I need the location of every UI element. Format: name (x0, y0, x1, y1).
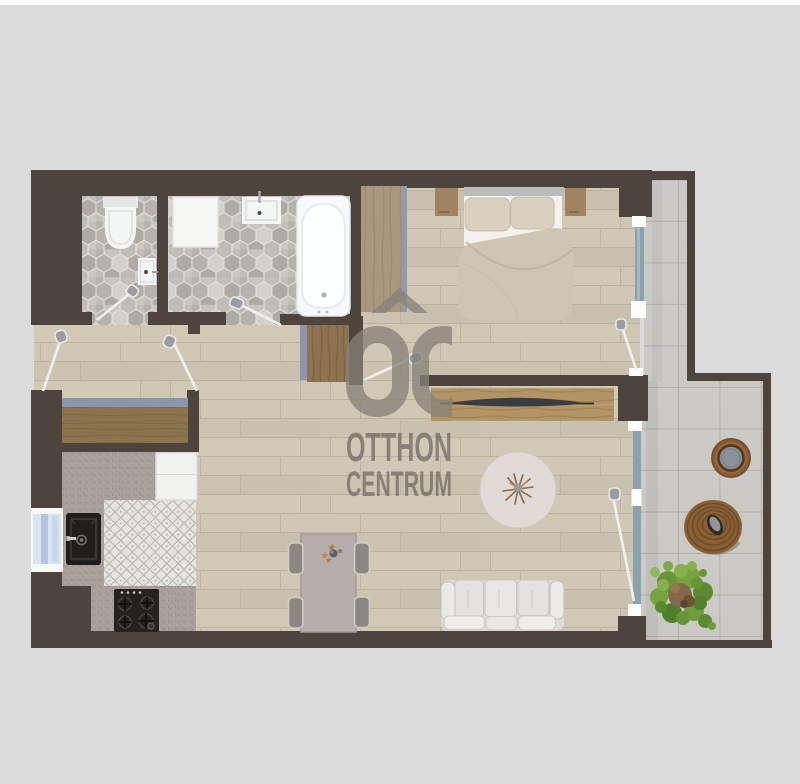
svg-text:CENTRUM: CENTRUM (346, 464, 452, 504)
